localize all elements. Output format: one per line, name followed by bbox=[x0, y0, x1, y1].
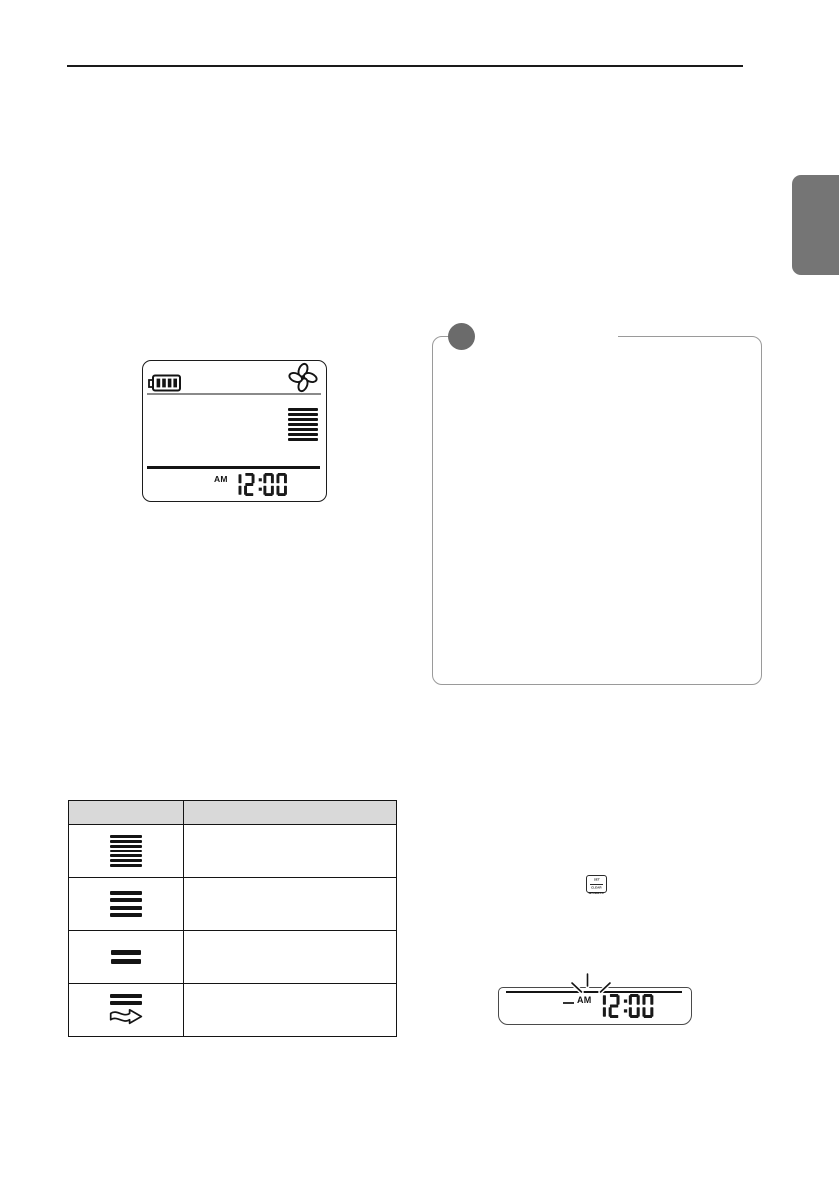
manual-page: { "colors": { "tab_gray": "#757575", "no… bbox=[0, 0, 839, 1191]
fan-icon bbox=[288, 362, 318, 393]
table-cell-description bbox=[184, 931, 397, 984]
table-cell-description bbox=[184, 825, 397, 878]
table-header-row bbox=[69, 801, 397, 825]
table-row bbox=[69, 878, 397, 931]
meridiem-label: AM bbox=[214, 475, 228, 484]
table-header-desc-col bbox=[184, 801, 397, 825]
fan-speed-table bbox=[68, 800, 397, 1037]
fan-speed-low-icon bbox=[69, 950, 183, 963]
button-divider bbox=[590, 884, 603, 885]
button-line1: SET bbox=[594, 879, 600, 882]
blink-marks-icon bbox=[565, 972, 615, 996]
note-title-gap bbox=[470, 334, 618, 339]
note-callout-box bbox=[432, 336, 762, 685]
meridiem-label: AM bbox=[577, 996, 591, 1005]
fan-speed-auto-icon bbox=[69, 994, 183, 1027]
table-cell-description bbox=[184, 984, 397, 1037]
fan-speed-bars-indicator bbox=[288, 408, 318, 441]
table-row bbox=[69, 984, 397, 1037]
fan-speed-medium-icon bbox=[69, 891, 183, 917]
time-display bbox=[595, 994, 654, 1018]
remote-display-illustration: AM bbox=[142, 360, 327, 502]
note-marker-icon bbox=[448, 323, 475, 350]
button-caption: WK/DAYS bbox=[586, 892, 607, 895]
table-row bbox=[69, 931, 397, 984]
table-header-icon-col bbox=[69, 801, 184, 825]
time-display bbox=[231, 473, 287, 496]
table-row bbox=[69, 825, 397, 878]
display-baseline bbox=[147, 466, 320, 469]
fan-speed-high-icon bbox=[69, 835, 183, 866]
top-rule bbox=[67, 65, 743, 67]
day-dash-segment bbox=[563, 1002, 574, 1004]
battery-icon bbox=[148, 373, 182, 393]
section-tab bbox=[792, 175, 839, 275]
display-separator-line bbox=[147, 393, 321, 395]
curved-arrow-icon bbox=[108, 1007, 144, 1027]
button-line2: CLEAR bbox=[591, 887, 601, 890]
table-cell-description bbox=[184, 878, 397, 931]
set-clear-button-icon: SET CLEAR bbox=[586, 875, 607, 893]
